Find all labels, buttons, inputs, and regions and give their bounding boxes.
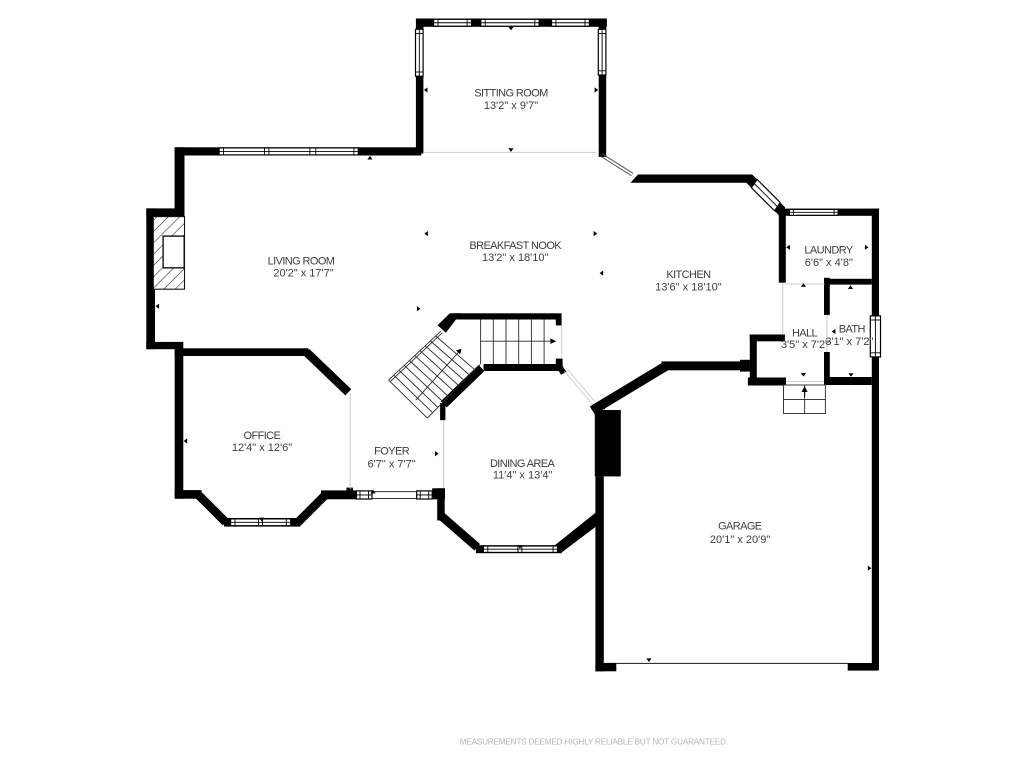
svg-text:LAUNDRY: LAUNDRY	[804, 245, 853, 257]
svg-text:20'1" x 20'9": 20'1" x 20'9"	[710, 534, 770, 546]
svg-text:SITTING ROOM: SITTING ROOM	[474, 88, 548, 100]
svg-text:OFFICE: OFFICE	[244, 430, 281, 442]
svg-text:13'2" x 18'10": 13'2" x 18'10"	[482, 252, 549, 264]
svg-text:GARAGE: GARAGE	[718, 520, 762, 532]
svg-text:6'7" x 7'7": 6'7" x 7'7"	[368, 459, 416, 471]
svg-text:20'2" x 17'7": 20'2" x 17'7"	[273, 267, 333, 279]
svg-text:11'4" x 13'4": 11'4" x 13'4"	[493, 470, 553, 482]
svg-text:13'2" x 9'7": 13'2" x 9'7"	[484, 100, 538, 112]
svg-text:LIVING ROOM: LIVING ROOM	[268, 256, 335, 268]
svg-text:13'6" x 18'10": 13'6" x 18'10"	[655, 281, 722, 293]
svg-text:BREAKFAST NOOK: BREAKFAST NOOK	[469, 240, 562, 252]
svg-text:FOYER: FOYER	[374, 446, 410, 458]
svg-text:3'1" x 7'2": 3'1" x 7'2"	[825, 336, 873, 348]
svg-text:BATH: BATH	[839, 323, 866, 335]
svg-text:3'5" x 7'2": 3'5" x 7'2"	[781, 339, 829, 351]
svg-text:DINING AREA: DINING AREA	[490, 458, 556, 470]
svg-text:KITCHEN: KITCHEN	[666, 269, 711, 281]
svg-text:6'6" x 4'8": 6'6" x 4'8"	[805, 257, 853, 269]
svg-text:MEASUREMENTS DEEMED HIGHLY REL: MEASUREMENTS DEEMED HIGHLY RELIABLE BUT …	[460, 738, 728, 747]
svg-text:HALL: HALL	[792, 327, 818, 339]
svg-text:12'4" x 12'6": 12'4" x 12'6"	[232, 442, 292, 454]
